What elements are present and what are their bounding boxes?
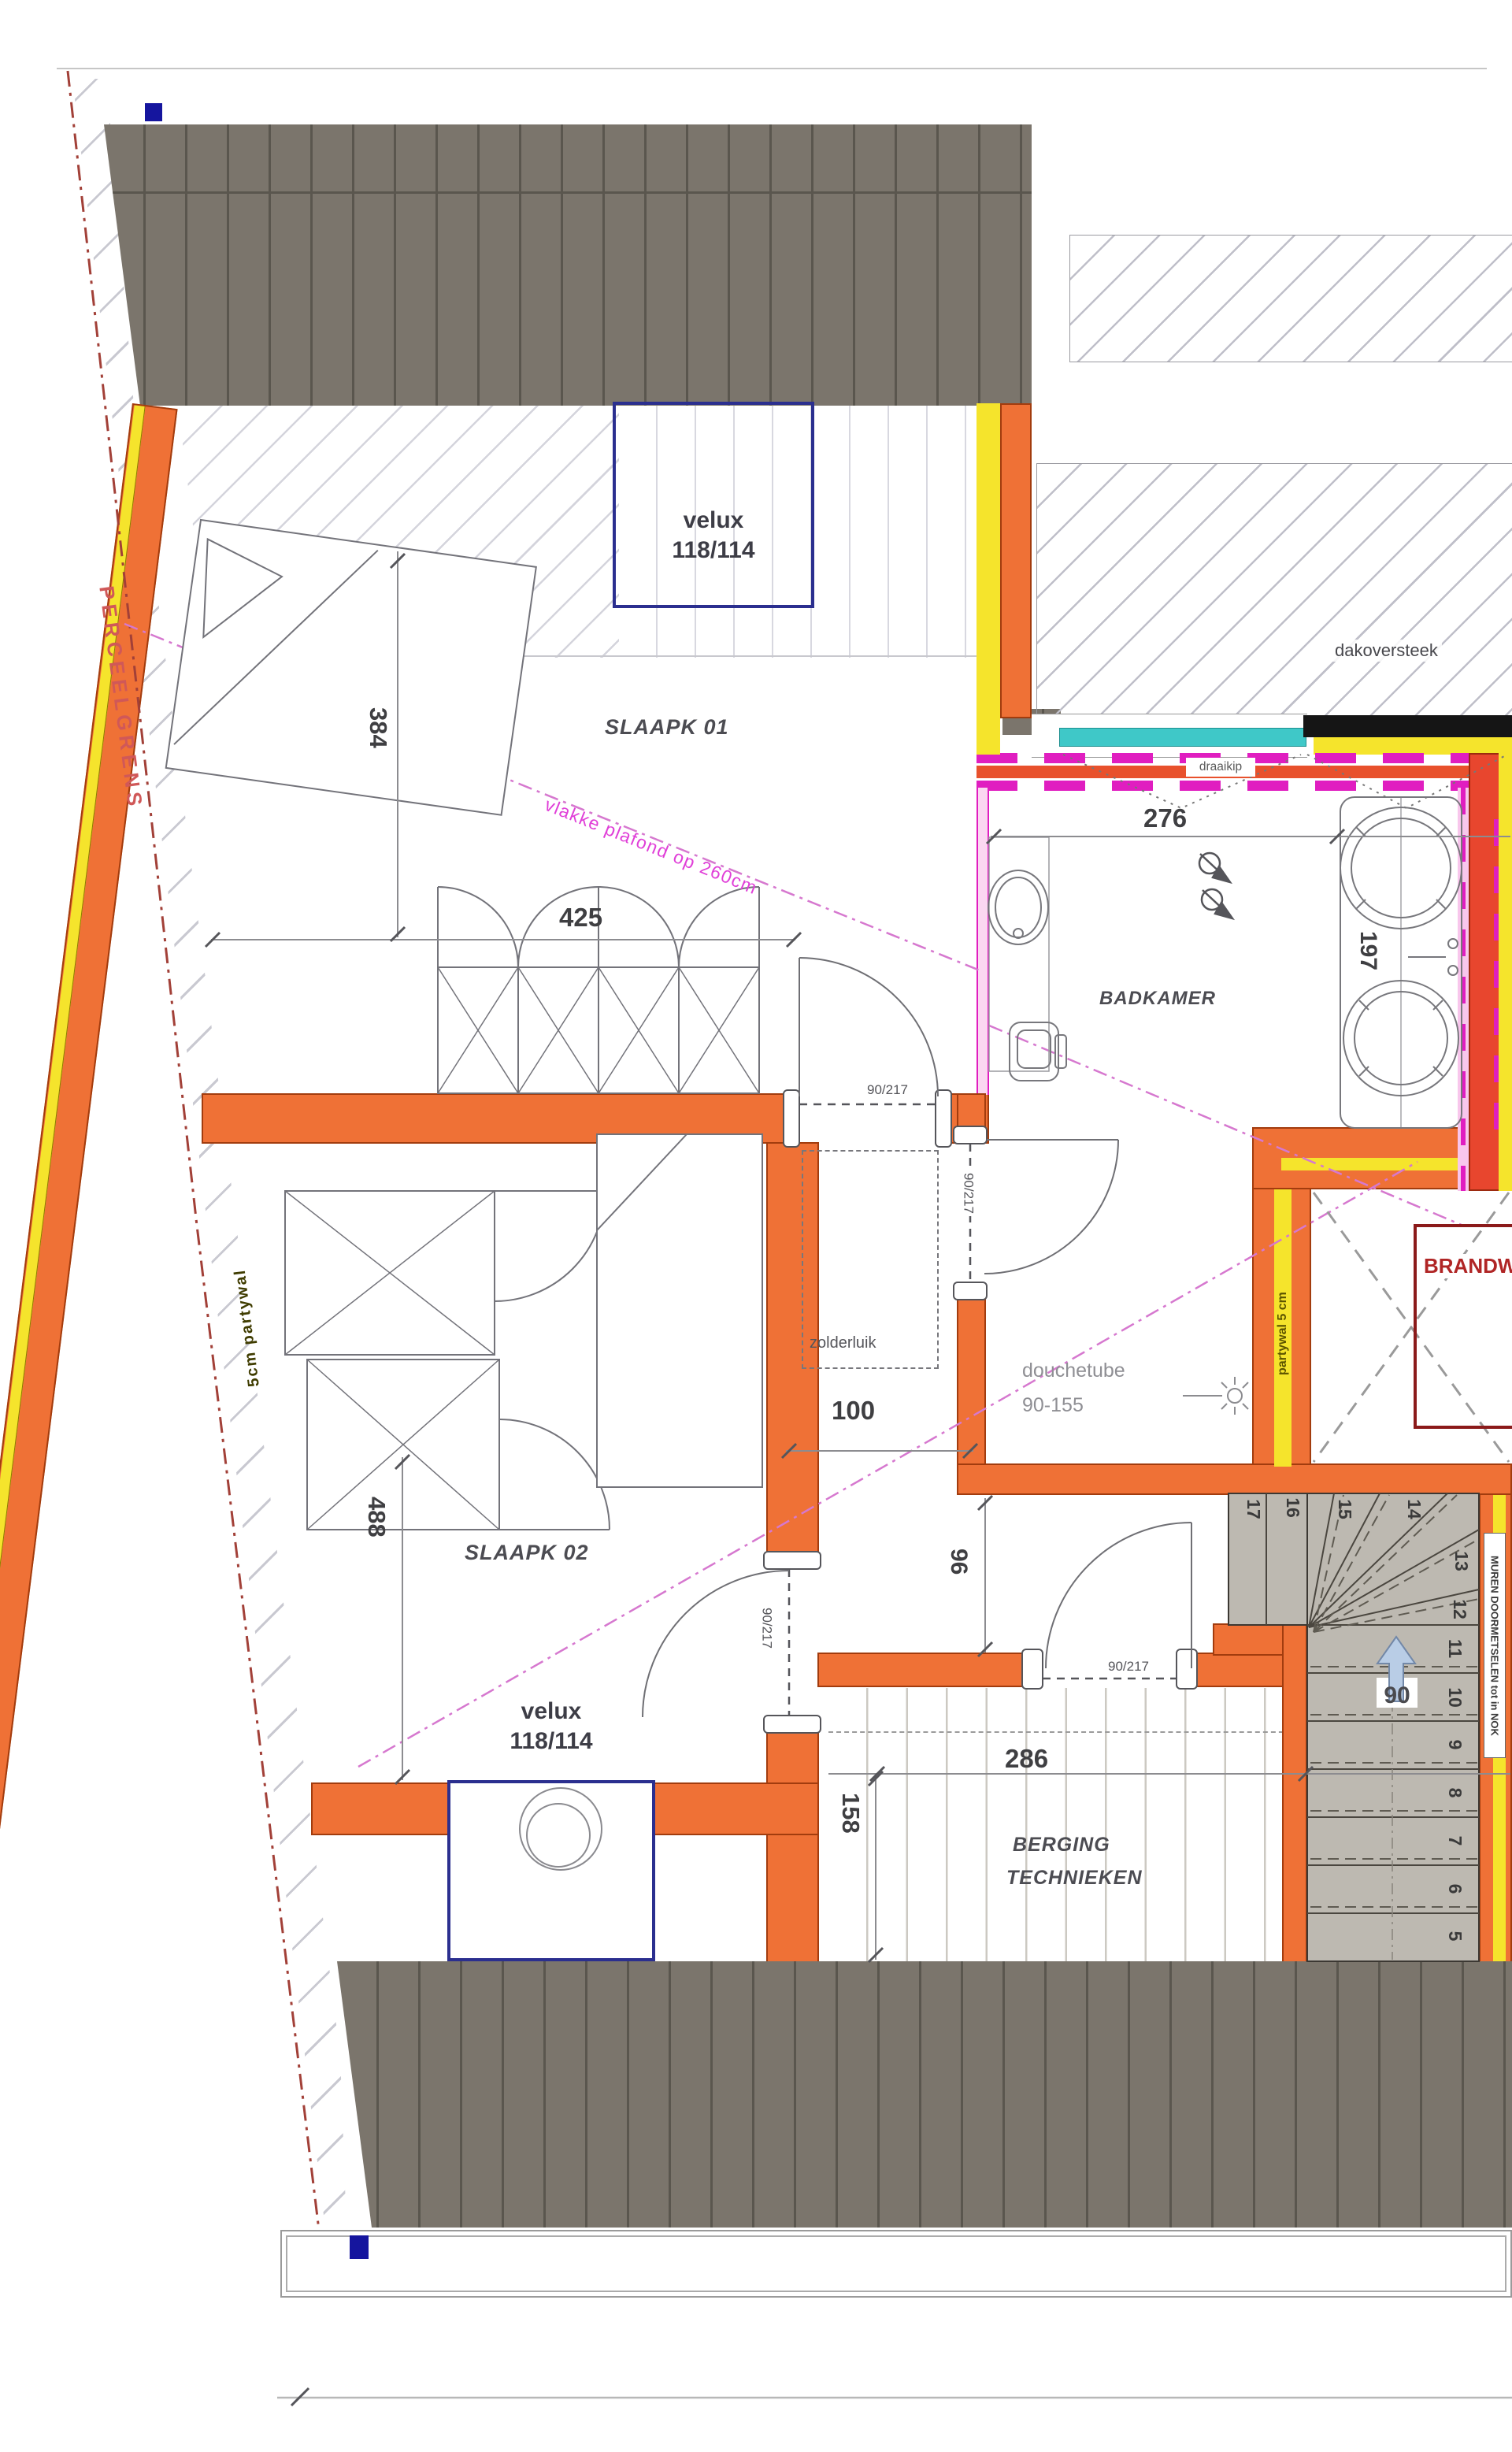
velux-size: 118/114: [450, 1727, 652, 1756]
draaikip-label: draaikip: [1186, 758, 1255, 777]
door-label-badkamer: 90/217: [961, 1170, 976, 1216]
bath-faucet: [1408, 939, 1458, 975]
dim-96: 96: [945, 1549, 972, 1575]
basin-symbol: [450, 1783, 658, 1964]
staircase: 5 6 7 8 9 10 11 12 13 14 15 16 17 90: [1228, 1493, 1479, 1961]
door-label-berging: 90/217: [1106, 1659, 1151, 1675]
velux-label: velux: [450, 1697, 652, 1727]
velux-label: velux: [616, 506, 811, 536]
survey-marker-bottom: [350, 2235, 369, 2259]
shower-head-symbols: [1199, 853, 1232, 918]
room-label-slaapk02: SLAAPK 02: [465, 1541, 589, 1565]
svg-text:12: 12: [1450, 1599, 1470, 1619]
dim-100: 100: [832, 1396, 875, 1426]
survey-marker-top: [145, 103, 162, 121]
svg-text:11: 11: [1445, 1639, 1466, 1659]
eaves-outline: [280, 2230, 1512, 2298]
room-label-badkamer: BADKAMER: [1099, 988, 1216, 1010]
wardrobe-slaapk02: [285, 1191, 610, 1530]
stair-width-label: 90: [1384, 1682, 1410, 1708]
svg-text:6: 6: [1445, 1884, 1466, 1894]
svg-text:15: 15: [1335, 1499, 1355, 1519]
muren-note-box: MUREN DOORMETSELEN tot in NOK: [1484, 1533, 1506, 1758]
velux-size: 118/114: [616, 536, 811, 566]
room-label-berging-1: BERGING: [1013, 1834, 1110, 1857]
douchetube-label-1: douchetube: [1022, 1360, 1125, 1382]
floor-plan-canvas: 5 6 7 8 9 10 11 12 13 14 15 16 17 90: [0, 0, 1512, 2452]
zolderluik-label: zolderluik: [810, 1334, 876, 1352]
svg-text:16: 16: [1283, 1497, 1303, 1518]
washbasin: [988, 870, 1048, 944]
velux-skylight-bottom: velux 118/114: [447, 1780, 655, 1961]
room-label-berging-2: TECHNIEKEN: [1006, 1867, 1143, 1890]
light-symbol: [1183, 1377, 1248, 1415]
dim-197: 197: [1354, 931, 1381, 970]
door-label-slaapk01: 90/217: [865, 1082, 910, 1098]
window-swing-dotted: [1063, 755, 1507, 808]
dim-425: 425: [559, 903, 602, 933]
velux-skylight-top: velux 118/114: [613, 402, 814, 608]
plan-geometry: 5 6 7 8 9 10 11 12 13 14 15 16 17 90: [0, 0, 1512, 2452]
dim-384: 384: [364, 707, 392, 748]
svg-text:14: 14: [1404, 1499, 1425, 1519]
dim-276: 276: [1143, 803, 1187, 833]
eaves-inner-line: [286, 2235, 1506, 2292]
door-label-slaapk02: 90/217: [759, 1605, 775, 1651]
svg-text:10: 10: [1445, 1687, 1466, 1708]
svg-text:7: 7: [1445, 1836, 1466, 1846]
svg-text:5: 5: [1445, 1931, 1466, 1942]
douchetube-label-2: 90-155: [1022, 1394, 1084, 1417]
dim-158: 158: [836, 1793, 865, 1834]
brandwerend-label: BRANDW: [1422, 1254, 1512, 1278]
partywal-right-label: partywal 5 cm: [1276, 1292, 1290, 1375]
dim-286: 286: [1005, 1744, 1048, 1774]
bed-slaapk02: [597, 1134, 762, 1487]
svg-text:17: 17: [1243, 1499, 1264, 1519]
svg-text:9: 9: [1445, 1740, 1466, 1750]
vanity-counter: [989, 837, 1049, 1071]
bed-slaapk01: [166, 520, 536, 815]
svg-text:13: 13: [1451, 1551, 1472, 1571]
room-label-slaapk01: SLAAPK 01: [605, 715, 729, 740]
perceelgrens-line: [68, 71, 321, 2250]
muren-note-text: MUREN DOORMETSELEN tot in NOK: [1489, 1556, 1501, 1736]
toilet: [1010, 1022, 1066, 1081]
dim-488: 488: [362, 1497, 391, 1538]
svg-text:8: 8: [1445, 1788, 1466, 1798]
dakoversteek-label: dakoversteek: [1331, 640, 1442, 662]
